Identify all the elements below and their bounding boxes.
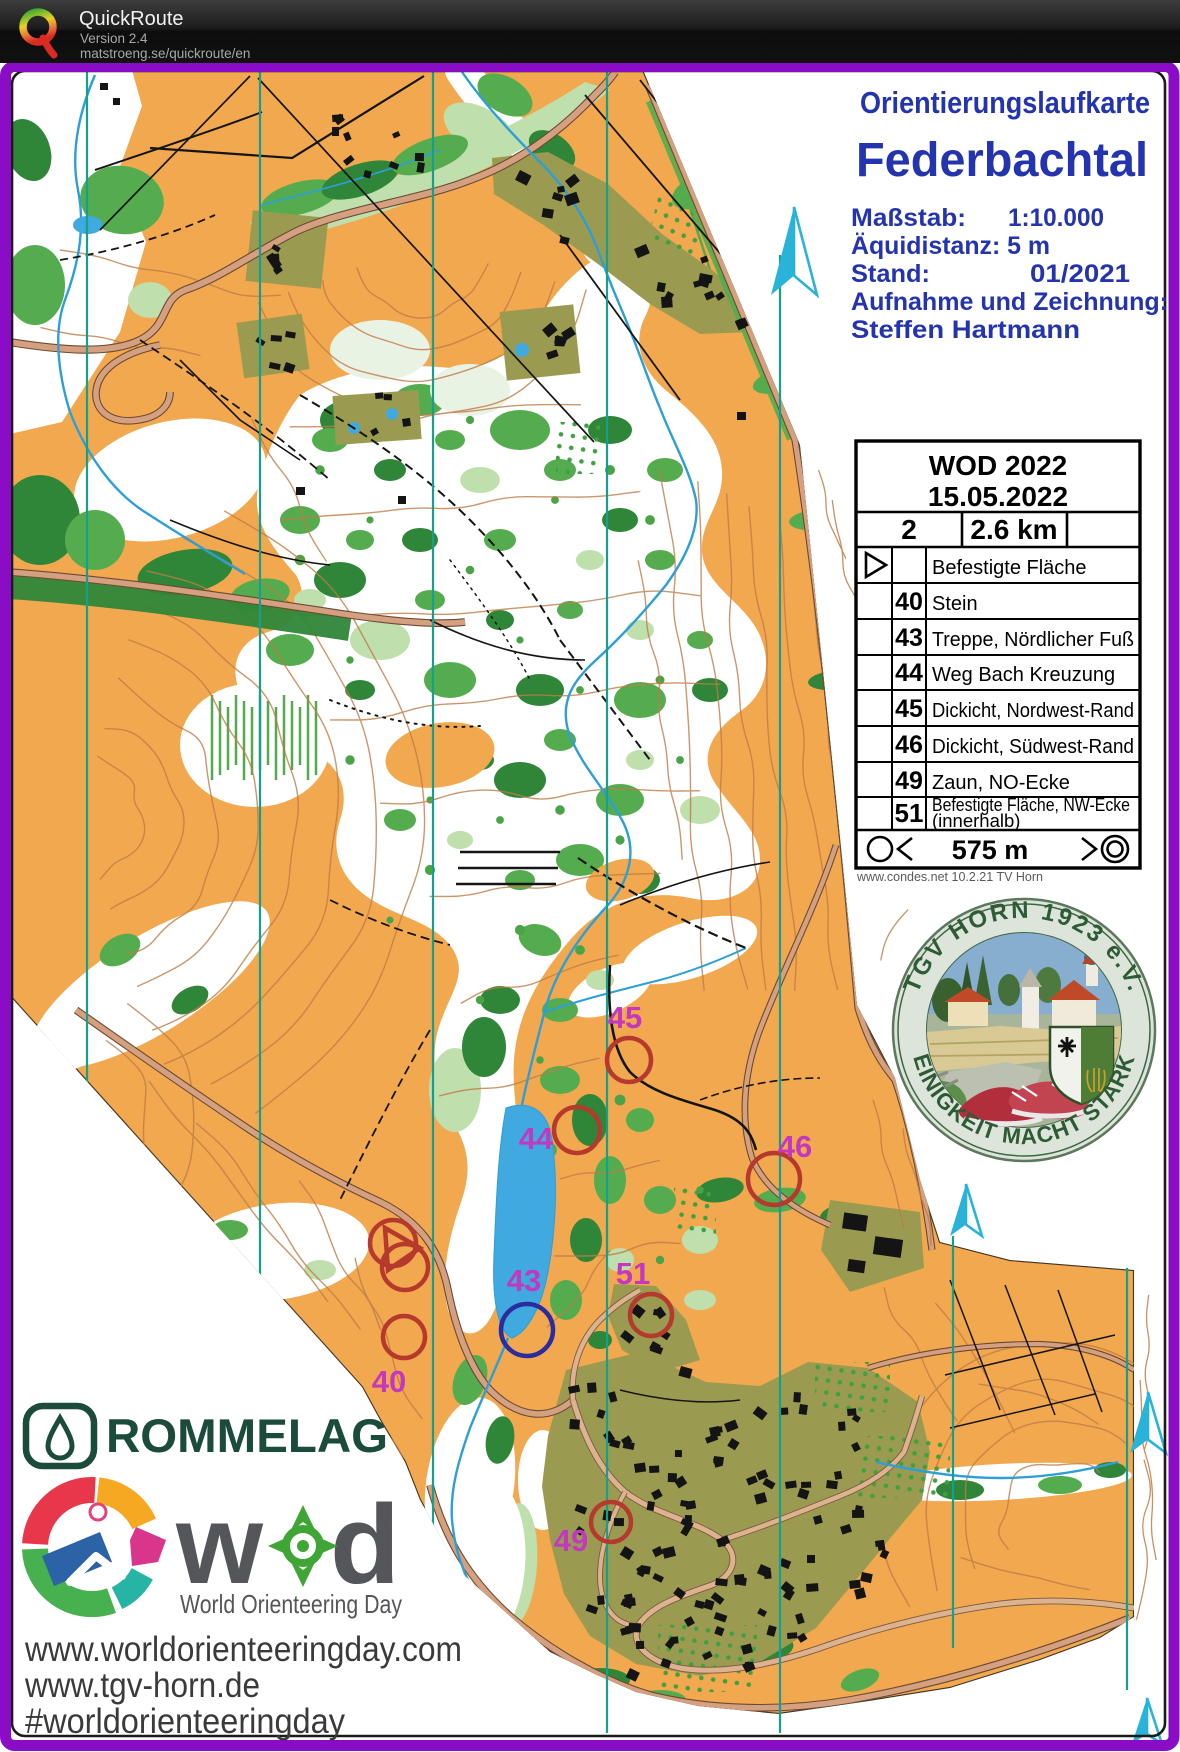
svg-text:51: 51 — [895, 798, 924, 828]
svg-text:Version 2.4: Version 2.4 — [80, 31, 148, 46]
svg-text:44: 44 — [895, 659, 923, 687]
svg-text:Maßstab:: Maßstab: — [851, 204, 966, 232]
svg-text:43: 43 — [895, 624, 923, 652]
svg-text:49: 49 — [554, 1523, 588, 1558]
svg-text:#worldorienteeringday: #worldorienteeringday — [25, 1702, 345, 1741]
svg-text:46: 46 — [895, 731, 923, 759]
svg-text:01/2021: 01/2021 — [1030, 260, 1130, 288]
svg-text:Stand:: Stand: — [851, 260, 930, 288]
svg-text:Treppe, Nördlicher Fuß: Treppe, Nördlicher Fuß — [932, 629, 1134, 651]
svg-text:51: 51 — [616, 1256, 650, 1291]
svg-text:43: 43 — [507, 1263, 541, 1298]
svg-text:46: 46 — [778, 1129, 812, 1164]
svg-text:44: 44 — [519, 1121, 554, 1156]
svg-text:Federbachtal: Federbachtal — [856, 134, 1148, 187]
svg-text:1:10.000: 1:10.000 — [1008, 204, 1104, 232]
svg-text:Orientierungslaufkarte: Orientierungslaufkarte — [860, 85, 1150, 120]
svg-text:QuickRoute: QuickRoute — [79, 8, 184, 30]
svg-text:Weg Bach Kreuzung: Weg Bach Kreuzung — [932, 664, 1115, 686]
svg-text:575 m: 575 m — [952, 835, 1029, 865]
svg-text:Zaun, NO-Ecke: Zaun, NO-Ecke — [932, 772, 1070, 794]
svg-text:Dickicht, Nordwest-Rand: Dickicht, Nordwest-Rand — [932, 700, 1134, 722]
svg-text:(innerhalb): (innerhalb) — [932, 810, 1020, 831]
svg-text:matstroeng.se/quickroute/en: matstroeng.se/quickroute/en — [80, 46, 250, 61]
svg-text:WOD 2022: WOD 2022 — [929, 450, 1068, 481]
svg-text:Stein: Stein — [932, 593, 978, 615]
svg-text:www.condes.net 10.2.21 TV Horn: www.condes.net 10.2.21 TV Horn — [856, 870, 1043, 884]
svg-text:Dickicht, Südwest-Rand: Dickicht, Südwest-Rand — [932, 736, 1134, 758]
svg-text:Äquidistanz: 5 m: Äquidistanz: 5 m — [851, 232, 1050, 260]
svg-text:15.05.2022: 15.05.2022 — [928, 481, 1068, 512]
svg-text:45: 45 — [608, 1000, 642, 1035]
svg-text:45: 45 — [895, 695, 923, 723]
svg-text:ROMMELAG: ROMMELAG — [106, 1409, 388, 1462]
svg-text:40: 40 — [372, 1364, 406, 1399]
svg-text:www.tgv-horn.de: www.tgv-horn.de — [24, 1666, 260, 1705]
svg-text:40: 40 — [895, 588, 923, 616]
svg-text:Aufnahme und Zeichnung:: Aufnahme und Zeichnung: — [851, 288, 1168, 316]
svg-text:2: 2 — [901, 514, 917, 545]
svg-text:www.worldorienteeringday.com: www.worldorienteeringday.com — [24, 1630, 462, 1669]
svg-text:Steffen Hartmann: Steffen Hartmann — [851, 316, 1080, 344]
svg-text:2.6 km: 2.6 km — [970, 514, 1057, 545]
svg-text:Befestigte Fläche: Befestigte Fläche — [932, 557, 1087, 579]
svg-text:49: 49 — [895, 767, 923, 795]
svg-text:World Orienteering Day: World Orienteering Day — [180, 1589, 402, 1619]
